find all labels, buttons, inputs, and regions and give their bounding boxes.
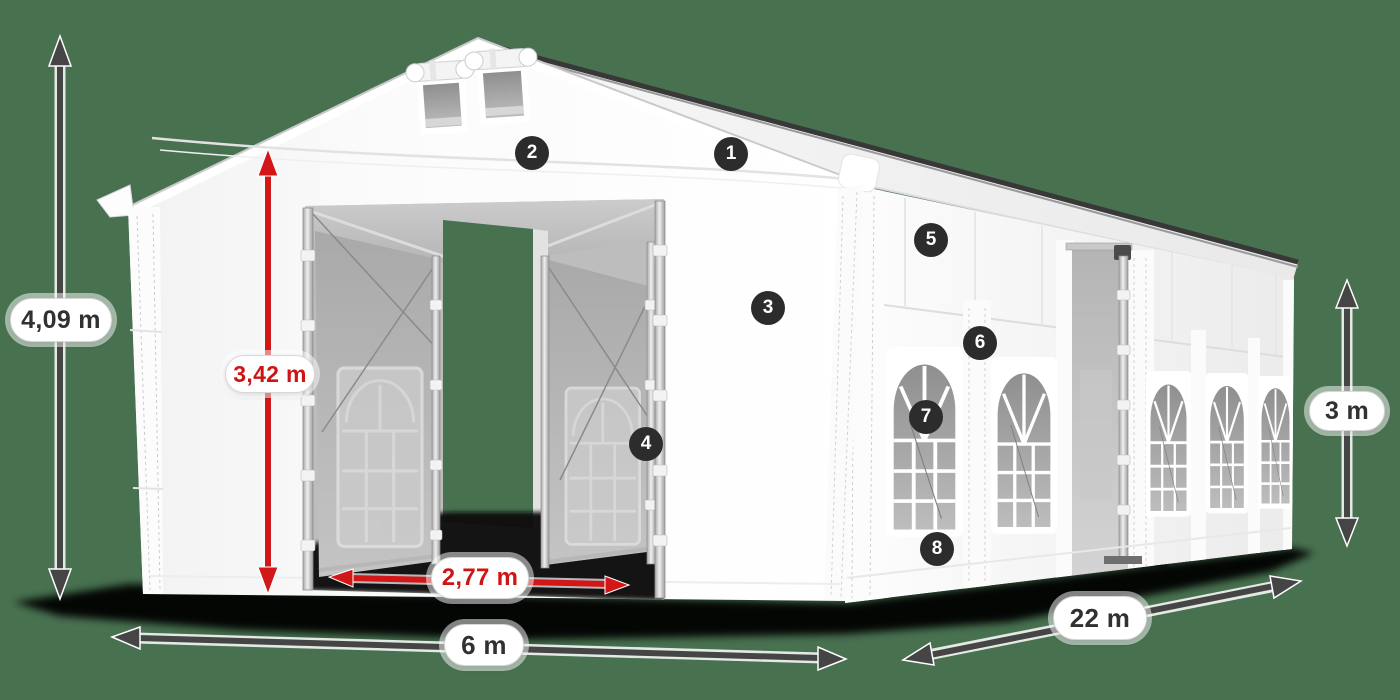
arch-window <box>1258 376 1293 509</box>
callout-number: 6 <box>975 332 986 354</box>
callout-badge-8: 8 <box>920 532 954 566</box>
dimension-label-total-height: 4,09 m <box>10 298 112 342</box>
callout-number: 4 <box>641 433 652 455</box>
tent-dimension-diagram: 4,09 m 3,42 m 2,77 m 6 m 22 m 3 m 1 2 3 … <box>0 0 1400 700</box>
callout-number: 1 <box>726 143 737 165</box>
callout-badge-7: 7 <box>909 400 943 434</box>
callout-number: 7 <box>921 406 932 428</box>
arch-window <box>1146 371 1191 517</box>
dimension-label-front-width: 6 m <box>444 624 524 666</box>
callout-number: 3 <box>763 297 774 319</box>
dimension-label-entrance-height: 3,42 m <box>225 355 315 393</box>
dimension-label-side-height: 3 m <box>1309 391 1385 431</box>
dimension-label-length: 22 m <box>1053 596 1147 640</box>
open-back-view <box>443 220 533 528</box>
arch-window <box>886 347 963 537</box>
callout-number: 8 <box>932 538 943 560</box>
callout-badge-5: 5 <box>914 223 948 257</box>
entrance-door-right <box>541 242 658 568</box>
callout-number: 5 <box>926 229 937 251</box>
arch-window <box>991 357 1057 534</box>
arch-window <box>1206 373 1248 513</box>
front-entrance <box>301 199 667 600</box>
callout-badge-1: 1 <box>714 137 748 171</box>
callout-badge-2: 2 <box>515 136 549 170</box>
callout-badge-6: 6 <box>963 326 997 360</box>
dimension-label-entrance-width: 2,77 m <box>431 557 529 599</box>
callout-number: 2 <box>527 142 538 164</box>
tent-illustration <box>0 0 1400 700</box>
entrance-door-left <box>313 214 442 577</box>
callout-badge-3: 3 <box>751 291 785 325</box>
callout-badge-4: 4 <box>629 427 663 461</box>
